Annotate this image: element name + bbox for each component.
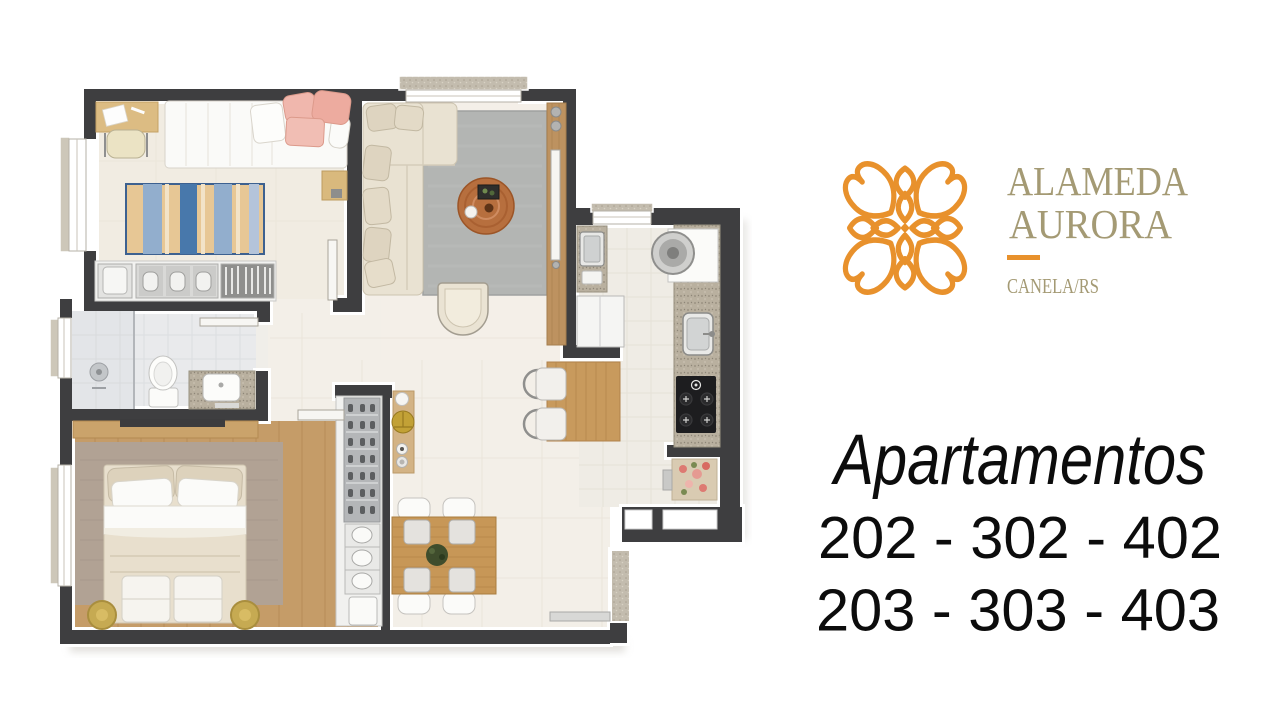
svg-text:Apartamentos: Apartamentos [831, 421, 1206, 500]
svg-text:202 - 302 - 402: 202 - 302 - 402 [818, 505, 1222, 571]
svg-text:CANELA/RS: CANELA/RS [1007, 274, 1099, 298]
svg-text:ALAMEDA: ALAMEDA [1007, 158, 1188, 204]
svg-text:203 - 303 - 403: 203 - 303 - 403 [816, 578, 1220, 644]
svg-text:AURORA: AURORA [1009, 201, 1172, 247]
